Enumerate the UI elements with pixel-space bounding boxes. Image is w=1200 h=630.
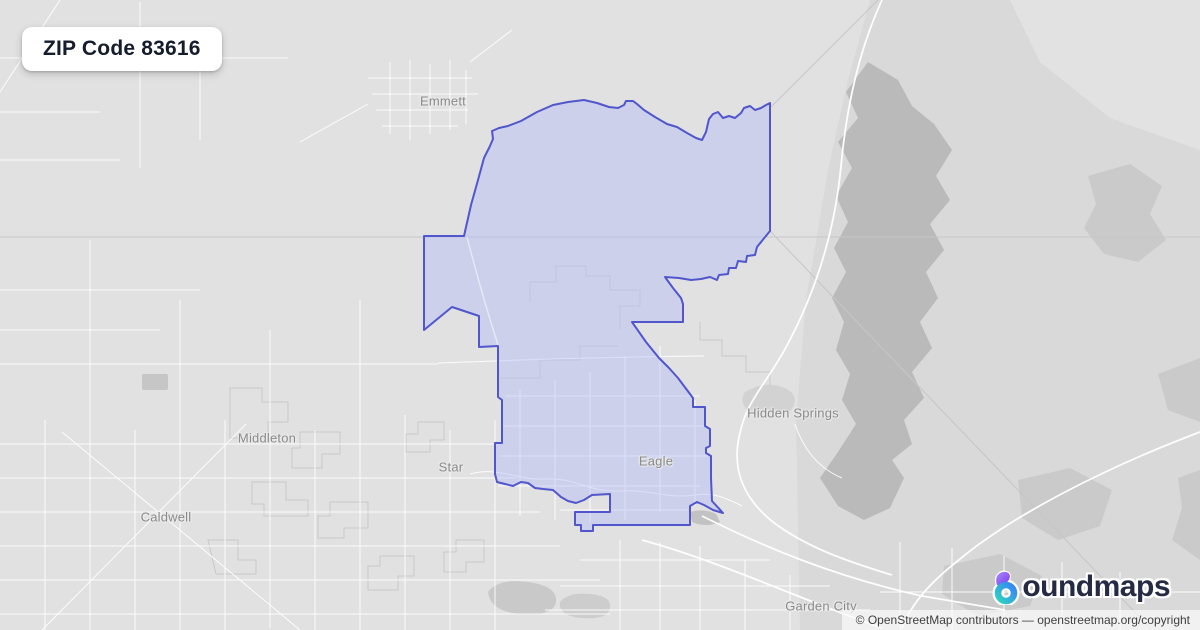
- map-label-caldwell: Caldwell: [141, 510, 192, 525]
- map-label-star: Star: [439, 460, 464, 475]
- basemap: [0, 0, 1200, 630]
- map-label-middleton: Middleton: [238, 431, 296, 446]
- attribution-bar: © OpenStreetMap contributors — openstree…: [842, 610, 1200, 630]
- map-label-eagle: Eagle: [639, 454, 673, 469]
- map-canvas[interactable]: Emmett Middleton Star Caldwell Eagle Hid…: [0, 0, 1200, 630]
- map-label-emmett: Emmett: [420, 94, 466, 109]
- map-label-hidden-springs: Hidden Springs: [747, 406, 839, 421]
- boundmaps-b-icon: [992, 569, 1021, 605]
- zip-title-text: ZIP Code 83616: [43, 37, 201, 60]
- zip-title-card: ZIP Code 83616: [22, 27, 222, 71]
- attribution-link[interactable]: © OpenStreetMap contributors — openstree…: [856, 613, 1190, 627]
- boundmaps-logo: oundmaps: [992, 569, 1170, 605]
- boundmaps-wordmark: oundmaps: [1022, 570, 1170, 604]
